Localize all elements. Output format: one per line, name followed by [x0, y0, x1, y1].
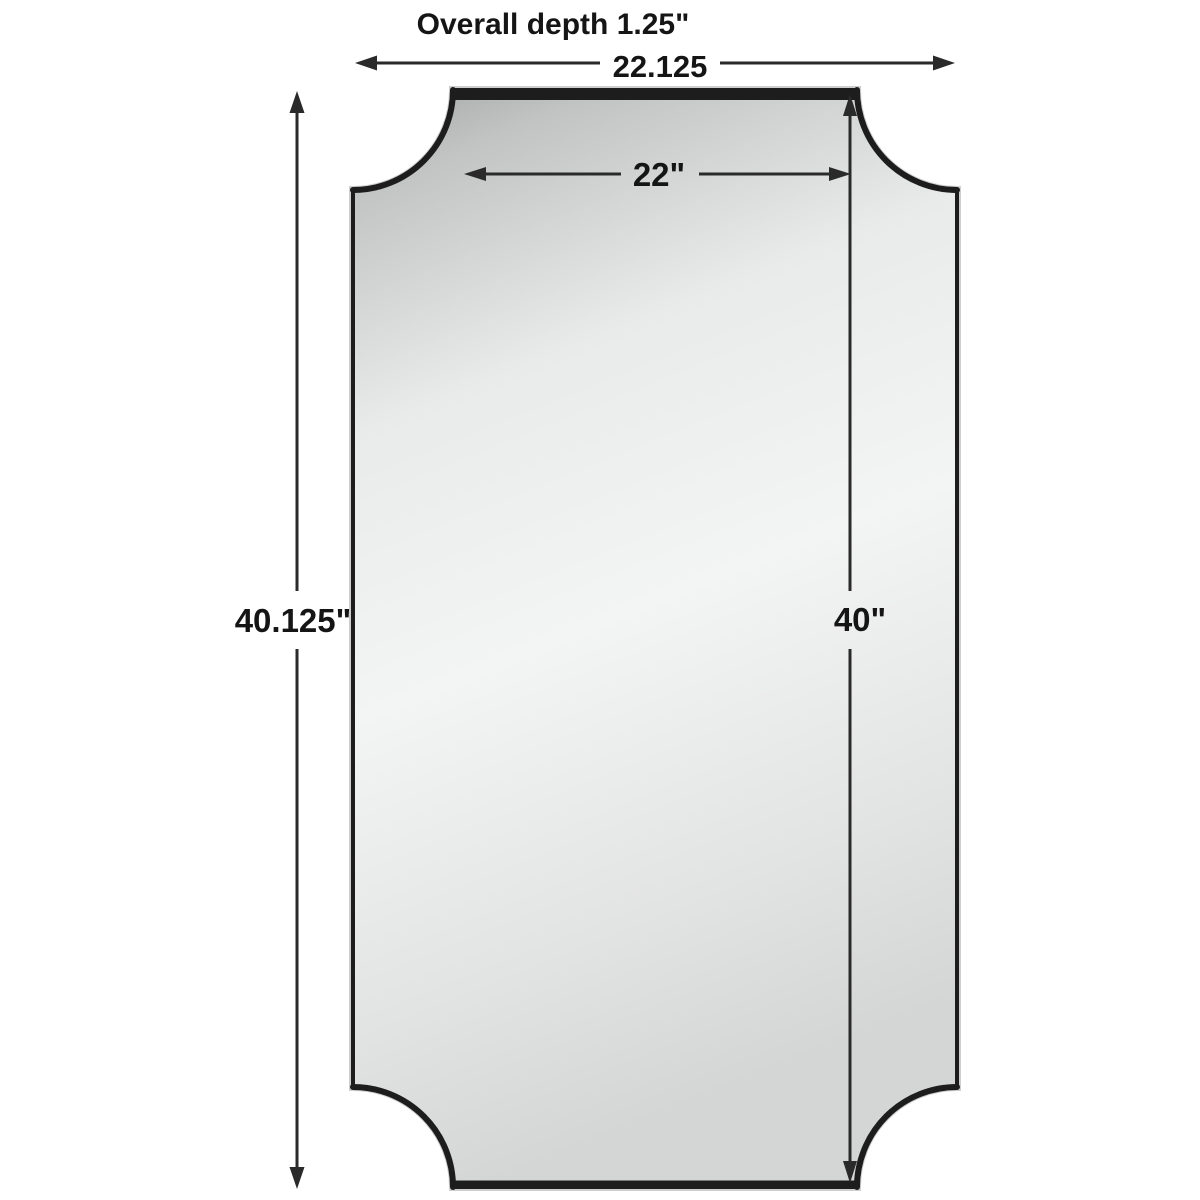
dim-overall-width-arrow-right — [933, 56, 955, 71]
dim-inner-height-label: 40" — [834, 601, 886, 638]
dim-inner-width-label: 22" — [633, 156, 685, 193]
product-dimension-diagram: Overall depth 1.25" 22.125 22" 40.125" — [0, 0, 1200, 1200]
dim-overall-width-label: 22.125 — [613, 49, 708, 84]
diagram-title: Overall depth 1.25" — [417, 8, 690, 41]
dim-overall-width: 22.125 — [355, 49, 955, 84]
dim-overall-width-arrow-left — [355, 56, 377, 71]
mirror-body — [353, 90, 957, 1187]
dim-overall-height-label: 40.125" — [235, 602, 352, 639]
dim-overall-height-arrow-top — [290, 91, 305, 113]
mirror — [353, 90, 957, 1187]
diagram-svg: Overall depth 1.25" 22.125 22" 40.125" — [0, 0, 1200, 1200]
dim-overall-height-arrow-bottom — [290, 1167, 305, 1189]
dim-overall-height: 40.125" — [235, 91, 352, 1189]
